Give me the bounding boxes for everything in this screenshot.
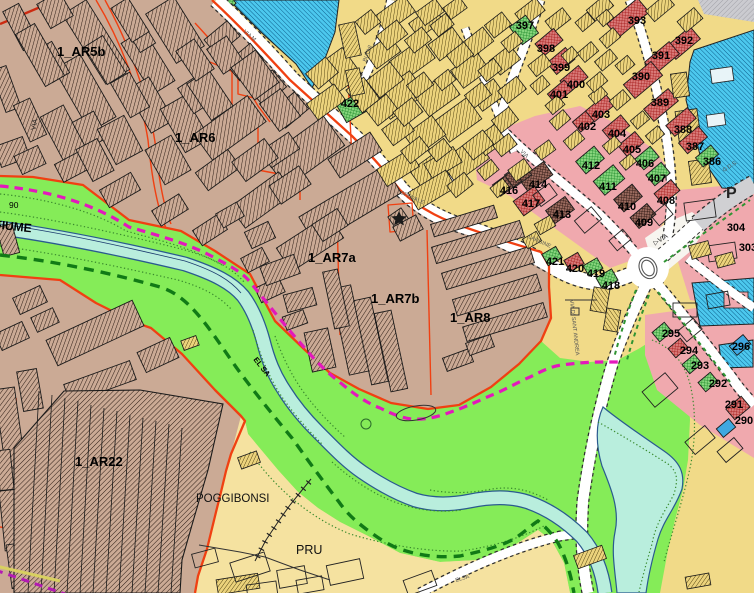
svg-text:388: 388: [674, 124, 692, 136]
svg-text:293: 293: [691, 360, 709, 372]
svg-text:411: 411: [599, 181, 617, 193]
svg-text:392: 392: [675, 35, 693, 47]
svg-text:PRU: PRU: [296, 543, 322, 557]
svg-text:1_AR8: 1_AR8: [450, 310, 490, 325]
svg-text:401: 401: [550, 89, 568, 101]
svg-text:413: 413: [553, 209, 571, 221]
svg-text:421: 421: [546, 256, 564, 268]
svg-text:416: 416: [500, 185, 518, 197]
svg-text:422: 422: [341, 98, 359, 110]
svg-text:420: 420: [566, 263, 584, 275]
svg-text:403: 403: [592, 109, 610, 121]
svg-text:386: 386: [703, 156, 721, 168]
svg-text:407: 407: [648, 173, 666, 185]
svg-text:296: 296: [732, 341, 750, 353]
svg-text:292: 292: [709, 378, 727, 390]
svg-text:400: 400: [567, 79, 585, 91]
svg-text:419: 419: [587, 268, 605, 280]
svg-text:1_AR22: 1_AR22: [75, 454, 123, 469]
svg-text:418: 418: [602, 280, 620, 292]
svg-text:291: 291: [725, 399, 743, 411]
svg-text:410: 410: [618, 201, 636, 213]
svg-text:304: 304: [727, 222, 746, 234]
svg-text:90: 90: [9, 200, 19, 210]
svg-text:402: 402: [578, 121, 596, 133]
svg-text:414: 414: [529, 179, 548, 191]
svg-text:1_AR7a: 1_AR7a: [308, 250, 356, 265]
svg-text:412: 412: [582, 160, 600, 172]
svg-text:393: 393: [628, 15, 646, 27]
svg-text:P: P: [726, 185, 737, 202]
svg-text:417: 417: [522, 198, 540, 210]
svg-text:387: 387: [686, 141, 704, 153]
svg-text:399: 399: [552, 62, 570, 74]
svg-text:398: 398: [537, 43, 555, 55]
svg-text:294: 294: [680, 345, 699, 357]
svg-text:295: 295: [662, 328, 680, 340]
svg-text:1_AR6: 1_AR6: [175, 130, 215, 145]
svg-text:397: 397: [516, 20, 534, 32]
svg-text:390: 390: [632, 71, 650, 83]
svg-text:391: 391: [652, 50, 670, 62]
svg-text:406: 406: [636, 158, 654, 170]
svg-text:405: 405: [623, 144, 641, 156]
svg-text:389: 389: [651, 97, 669, 109]
svg-text:409: 409: [635, 217, 653, 229]
svg-text:290: 290: [735, 415, 753, 427]
svg-text:404: 404: [608, 128, 627, 140]
svg-text:POGGIBONSI: POGGIBONSI: [196, 493, 270, 505]
svg-text:1_AR5b: 1_AR5b: [57, 44, 105, 59]
svg-text:1_AR7b: 1_AR7b: [371, 291, 419, 306]
svg-text:408: 408: [657, 195, 675, 207]
svg-text:303: 303: [739, 242, 754, 254]
